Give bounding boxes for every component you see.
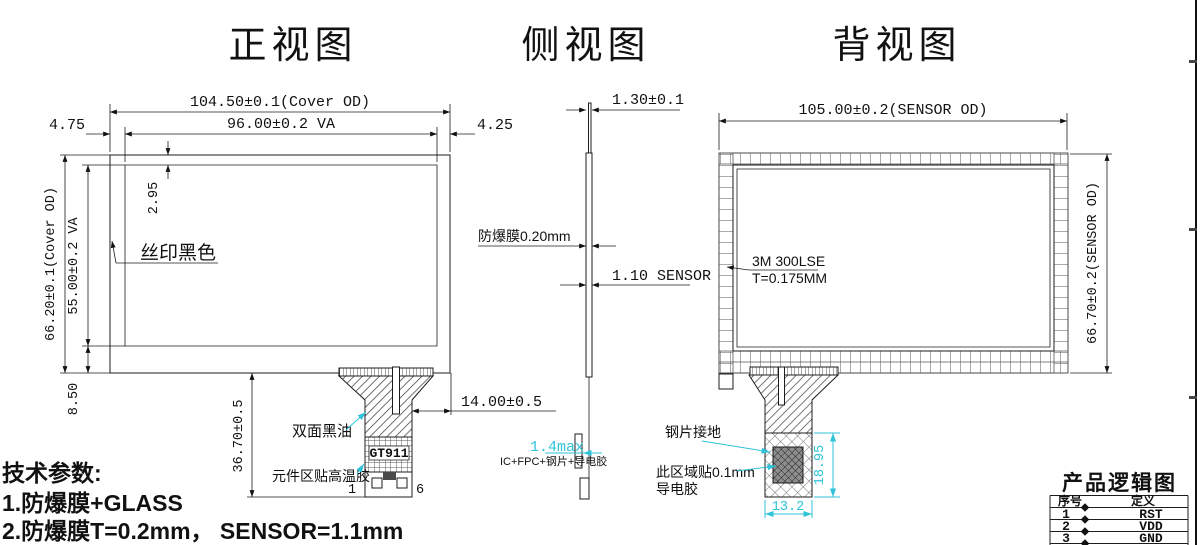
connector-tab [383,472,396,480]
adhesive-callout: 3M 300LSE T=0.175MM [727,253,827,286]
dim-bottom-margin: 8.50 [67,383,82,415]
side-glass-edge [586,153,592,377]
tech-params-line2: 2.防爆膜T=0.2mm， SENSOR=1.1mm [2,518,403,544]
high-temp-tape-label: 元件区贴高温胶 [272,468,370,484]
silk-print-label: 丝印黑色 [140,242,216,264]
dim-steel-width: 13.2 [772,500,804,515]
front-view-title: 正视图 [228,25,357,67]
pin-1-label: 1 [348,483,356,498]
dim-cover-width: 104.50±0.1(Cover OD) [190,94,370,111]
conductive-glue-callout: 此区域贴0.1mm 导电胶 [656,464,776,497]
high-temp-tape-callout: 元件区贴高温胶 [272,464,370,484]
side-film-edge [589,103,592,153]
stack-note-label: IC+FPC+钢片+导电胶 [500,454,607,468]
conductive-glue-label-1: 此区域贴0.1mm [656,464,755,480]
sheet-frame [1189,0,1197,545]
adhesive-label-2: T=0.175MM [752,270,827,286]
dim-sensor-width: 105.00±0.2(SENSOR OD) [798,102,987,119]
back-corner-tab [719,374,733,389]
tech-params-line1: 1.防爆膜+GLASS [2,490,183,516]
pin-node-icon [1081,527,1089,535]
dim-sensor-thickness: 1.10 SENSOR [612,268,711,285]
pin-node-icon [1081,539,1089,545]
table-header-no: 序号 [1058,493,1082,508]
table-row-def: GND [1139,531,1163,545]
tail-slot [393,367,400,414]
dim-va-width: 96.00±0.2 VA [227,116,335,133]
frame-tick [1189,228,1197,231]
back-view-title: 背视图 [832,25,961,67]
side-view-title: 侧视图 [521,25,650,67]
dim-left-margin: 4.75 [49,117,85,134]
frame-tick [1189,60,1197,63]
steel-ground-callout: 钢片接地 [665,424,770,452]
dim-top-margin: 2.95 [147,182,162,214]
silk-print-callout: 丝印黑色 [112,241,218,264]
adhesive-label-1: 3M 300LSE [752,253,825,269]
black-oil-label: 双面黑油 [292,423,352,440]
front-view: 正视图 GT911 1 6 [44,25,556,498]
back-tail-slot [779,367,785,405]
pin-node-icon [1081,515,1089,523]
conductive-glue-label-2: 导电胶 [656,481,698,497]
steel-ground-label: 钢片接地 [665,424,721,440]
black-oil-callout: 双面黑油 [292,412,366,440]
film-thickness-label: 防爆膜0.20mm [478,228,571,244]
bonding-bar-left [339,368,393,376]
dim-va-height: 55.00±0.2 VA [67,216,82,314]
pin-6-label: 6 [416,483,424,498]
frame-tick [1189,396,1197,399]
tech-params-title: 技术参数: [2,460,102,486]
drawing-canvas: 正视图 GT911 1 6 [0,0,1200,545]
side-connector-end [580,478,589,499]
dim-tail-length: 36.70±0.5 [232,400,247,473]
dim-cover-height: 66.20±0.1(Cover OD) [44,187,59,341]
back-view: 背视图 [656,25,1112,518]
dim-steel-height: 18.95 [813,445,828,486]
table-header-def: 定义 [1131,493,1156,508]
dim-right-margin: 4.25 [477,117,513,134]
table-row-no: 3 [1062,531,1070,545]
logic-table-title: 产品逻辑图 [1062,471,1177,495]
logic-table: 产品逻辑图 序号 定义 1 RST 2 VDD 3 GND [1050,471,1188,545]
dim-stack-thickness: 1.4max [530,439,584,456]
dim-sensor-height: 66.70±0.2(SENSOR OD) [1086,182,1101,344]
touch-panel-drawing: 正视图 GT911 1 6 [0,0,1200,545]
pin-node-icon [1081,503,1089,511]
dim-total-thickness: 1.30±0.1 [612,92,684,109]
bonding-bar-right [400,368,434,376]
ic-label: GT911 [369,446,408,461]
conductive-glue-area [773,447,803,483]
back-bonding-bar [750,367,838,375]
dim-tail-offset: 14.00±0.5 [461,394,542,411]
